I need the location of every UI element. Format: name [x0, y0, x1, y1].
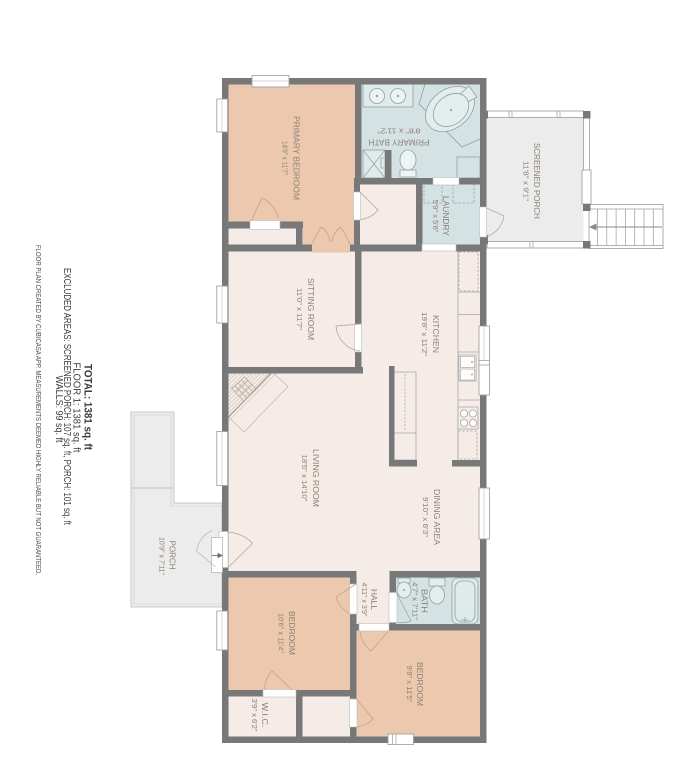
svg-text:SITTING ROOM: SITTING ROOM	[306, 278, 316, 340]
svg-text:3'9" x 6'2": 3'9" x 6'2"	[250, 699, 259, 732]
svg-text:PRIMARY BEDROOM: PRIMARY BEDROOM	[292, 116, 302, 200]
svg-text:BEDROOM: BEDROOM	[415, 662, 425, 706]
svg-text:PORCH: PORCH	[168, 541, 178, 570]
svg-text:LIVING ROOM: LIVING ROOM	[311, 449, 321, 507]
svg-text:18'5" x 14'10": 18'5" x 14'10"	[300, 455, 309, 502]
svg-text:HALL: HALL	[369, 589, 379, 610]
svg-text:TOTAL: 1381 sq. ft: TOTAL: 1381 sq. ft	[82, 364, 94, 450]
svg-text:8'8" x 11'2": 8'8" x 11'2"	[377, 127, 420, 136]
svg-text:BATH: BATH	[420, 589, 430, 613]
svg-text:5'9" x 5'6": 5'9" x 5'6"	[431, 200, 440, 233]
svg-text:FLOOR PLAN CREATED BY CUBICASA: FLOOR PLAN CREATED BY CUBICASA APP. MEAS…	[34, 245, 41, 575]
svg-text:BEDROOM: BEDROOM	[287, 611, 297, 655]
svg-text:KITCHEN: KITCHEN	[431, 315, 441, 353]
svg-text:LAUNDRY: LAUNDRY	[441, 196, 451, 236]
svg-text:10'6" x 11'4": 10'6" x 11'4"	[277, 613, 286, 653]
svg-text:4'11" x 3'9": 4'11" x 3'9"	[360, 583, 369, 617]
svg-text:10'9" x 7'11": 10'9" x 7'11"	[158, 537, 167, 575]
svg-text:WALLS: 99 sq. ft: WALLS: 99 sq. ft	[53, 376, 64, 443]
svg-text:19'8" x 11'2": 19'8" x 11'2"	[420, 312, 429, 356]
svg-text:4'7" x 7'11": 4'7" x 7'11"	[411, 582, 420, 620]
svg-text:W.I.C.: W.I.C.	[260, 703, 270, 728]
svg-text:11'8" x 9'1": 11'8" x 9'1"	[522, 161, 531, 201]
svg-text:11'0" x 11'7": 11'0" x 11'7"	[295, 288, 304, 330]
svg-text:PRIMARY BATH: PRIMARY BATH	[369, 138, 430, 148]
svg-text:DINING AREA: DINING AREA	[432, 489, 442, 545]
svg-text:14'9" x 11'7": 14'9" x 11'7"	[281, 141, 290, 175]
svg-text:9'10" x 8'3": 9'10" x 8'3"	[421, 497, 430, 537]
svg-text:9'8" x 11'5": 9'8" x 11'5"	[405, 666, 414, 703]
svg-text:SCREENED PORCH: SCREENED PORCH	[532, 143, 542, 219]
